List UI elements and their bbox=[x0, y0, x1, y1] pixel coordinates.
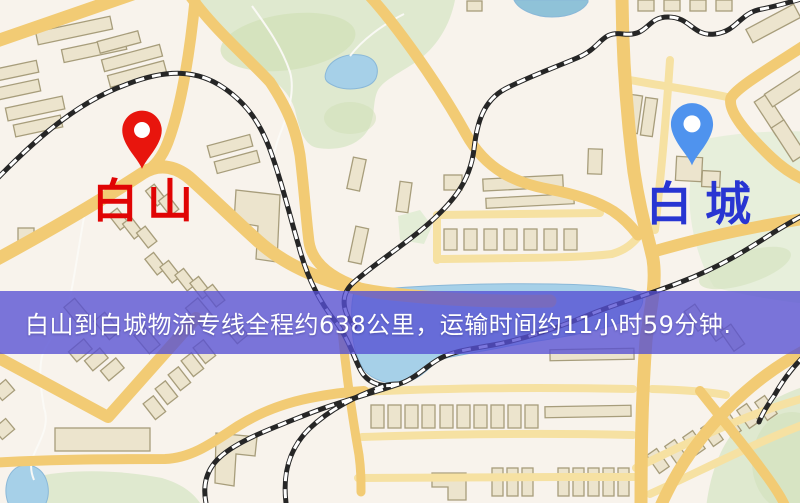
origin-city-label: 白山 bbox=[92, 178, 202, 224]
destination-pin-icon bbox=[669, 102, 715, 167]
pin-hole bbox=[134, 122, 150, 138]
route-summary-text: 白山到白城物流专线全程约638公里，运输时间约11小时59分钟. bbox=[25, 305, 732, 340]
map-canvas bbox=[0, 0, 800, 503]
destination-city-label: 白城 bbox=[646, 181, 764, 227]
route-summary-banner: 白山到白城物流专线全程约638公里，运输时间约11小时59分钟. bbox=[0, 291, 800, 354]
origin-pin-icon bbox=[121, 109, 163, 171]
pin-hole bbox=[683, 115, 700, 132]
map-page: 白山 白城 白山到白城物流专线全程约638公里，运输时间约11小时59分钟. bbox=[0, 0, 800, 503]
